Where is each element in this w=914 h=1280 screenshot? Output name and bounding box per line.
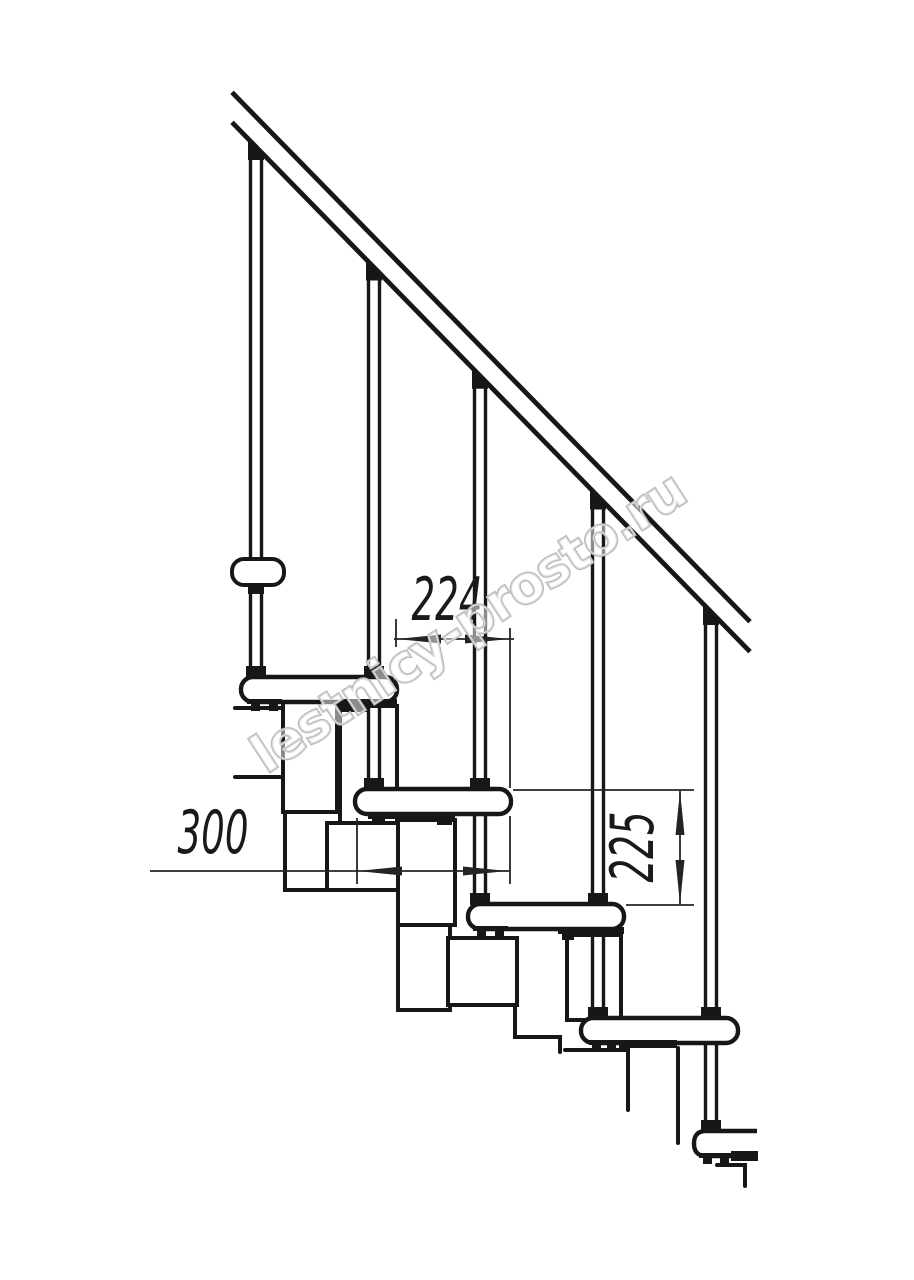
baluster-3-collar [470,778,490,790]
tread-4-rear-foot [607,1045,616,1051]
tread-5-rear-foot [720,1158,729,1164]
tread-2-foot [372,819,385,825]
tread-4-front-bracket [619,1040,677,1048]
tread-1-rear-foot [269,704,278,711]
tread-1-rear-foot [251,704,260,711]
tread-5-front-bracket [731,1151,758,1161]
module-boxes-layer [235,702,745,1186]
tread-4-rear-foot [592,1045,601,1051]
tread-3-rear-foot [495,931,504,938]
wall-bracket-foot [248,586,264,594]
technical-drawing-page: 224 300 225 lestnicy-prosto.ru [0,0,914,1280]
handrail-layer [232,92,750,651]
module-step-line [515,1005,560,1052]
baluster-5-collar [701,1007,721,1019]
watermark-text: lestnicy-prosto.ru [241,460,697,785]
module-step-line [285,812,327,890]
tread-4-rear-bracket [589,1040,621,1045]
baluster-4-collar [588,1007,608,1019]
tread-5-rear-foot [703,1158,712,1164]
module-box-rear-3 [448,938,517,1005]
module-box-rear-2 [327,823,403,890]
baluster-5-collar [701,1120,721,1132]
staircase-drawing: 224 300 225 lestnicy-prosto.ru [0,0,914,1280]
tread-3-front-bracket [558,927,624,934]
dimension-depth-label: 300 [178,798,249,868]
tread-3-rear-bracket [473,926,508,931]
tread-2-foot [437,819,452,825]
tread-2 [355,789,511,814]
baluster-2-collar [364,778,384,790]
handrail-upper-line [232,92,750,621]
tread-1-rear-bracket [247,699,282,704]
module-box-front-2 [398,820,455,925]
tread-3-rear-foot [477,931,486,938]
tread-3-front-foot [562,934,574,940]
tread-2-bracket [368,812,455,819]
dim-225-arrow-up [676,791,685,835]
baluster-1-collar [246,666,266,678]
dimension-rise-label: 225 [598,812,668,883]
tread-3 [468,904,624,929]
wall-bracket [232,559,284,585]
module-partial-line [717,1165,745,1186]
module-box-front-2b [398,925,450,1010]
tread-5-rear-bracket [699,1153,734,1158]
tread-4 [581,1018,738,1043]
dim-225-arrow-down [676,860,685,904]
baluster-3-collar [470,893,490,905]
module-partial-line [565,1050,628,1110]
baluster-4-collar [588,893,608,905]
